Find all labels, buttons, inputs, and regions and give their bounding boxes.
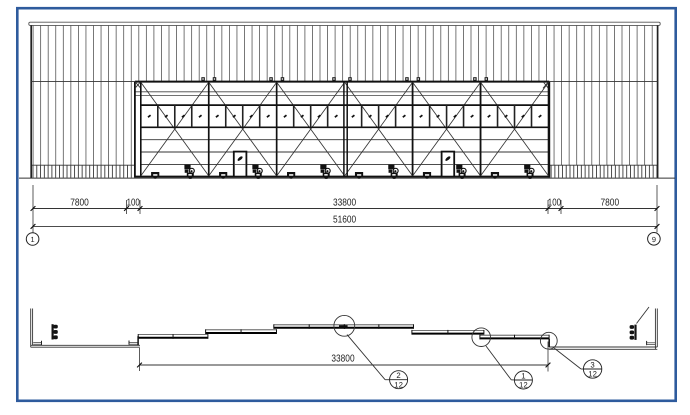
svg-text:100: 100 <box>548 198 562 209</box>
svg-text:12: 12 <box>394 380 403 389</box>
svg-text:12: 12 <box>519 381 528 390</box>
svg-text:51600: 51600 <box>333 215 357 226</box>
svg-text:33800: 33800 <box>331 353 355 364</box>
svg-text:1: 1 <box>31 235 35 244</box>
svg-text:100: 100 <box>127 198 141 209</box>
svg-text:2: 2 <box>396 371 400 380</box>
svg-text:9: 9 <box>652 235 656 244</box>
svg-text:12: 12 <box>588 370 597 379</box>
svg-text:1: 1 <box>521 371 525 380</box>
svg-text:33800: 33800 <box>333 197 357 208</box>
svg-text:7800: 7800 <box>601 198 620 209</box>
svg-text:7800: 7800 <box>70 198 89 209</box>
svg-text:3: 3 <box>590 360 594 369</box>
